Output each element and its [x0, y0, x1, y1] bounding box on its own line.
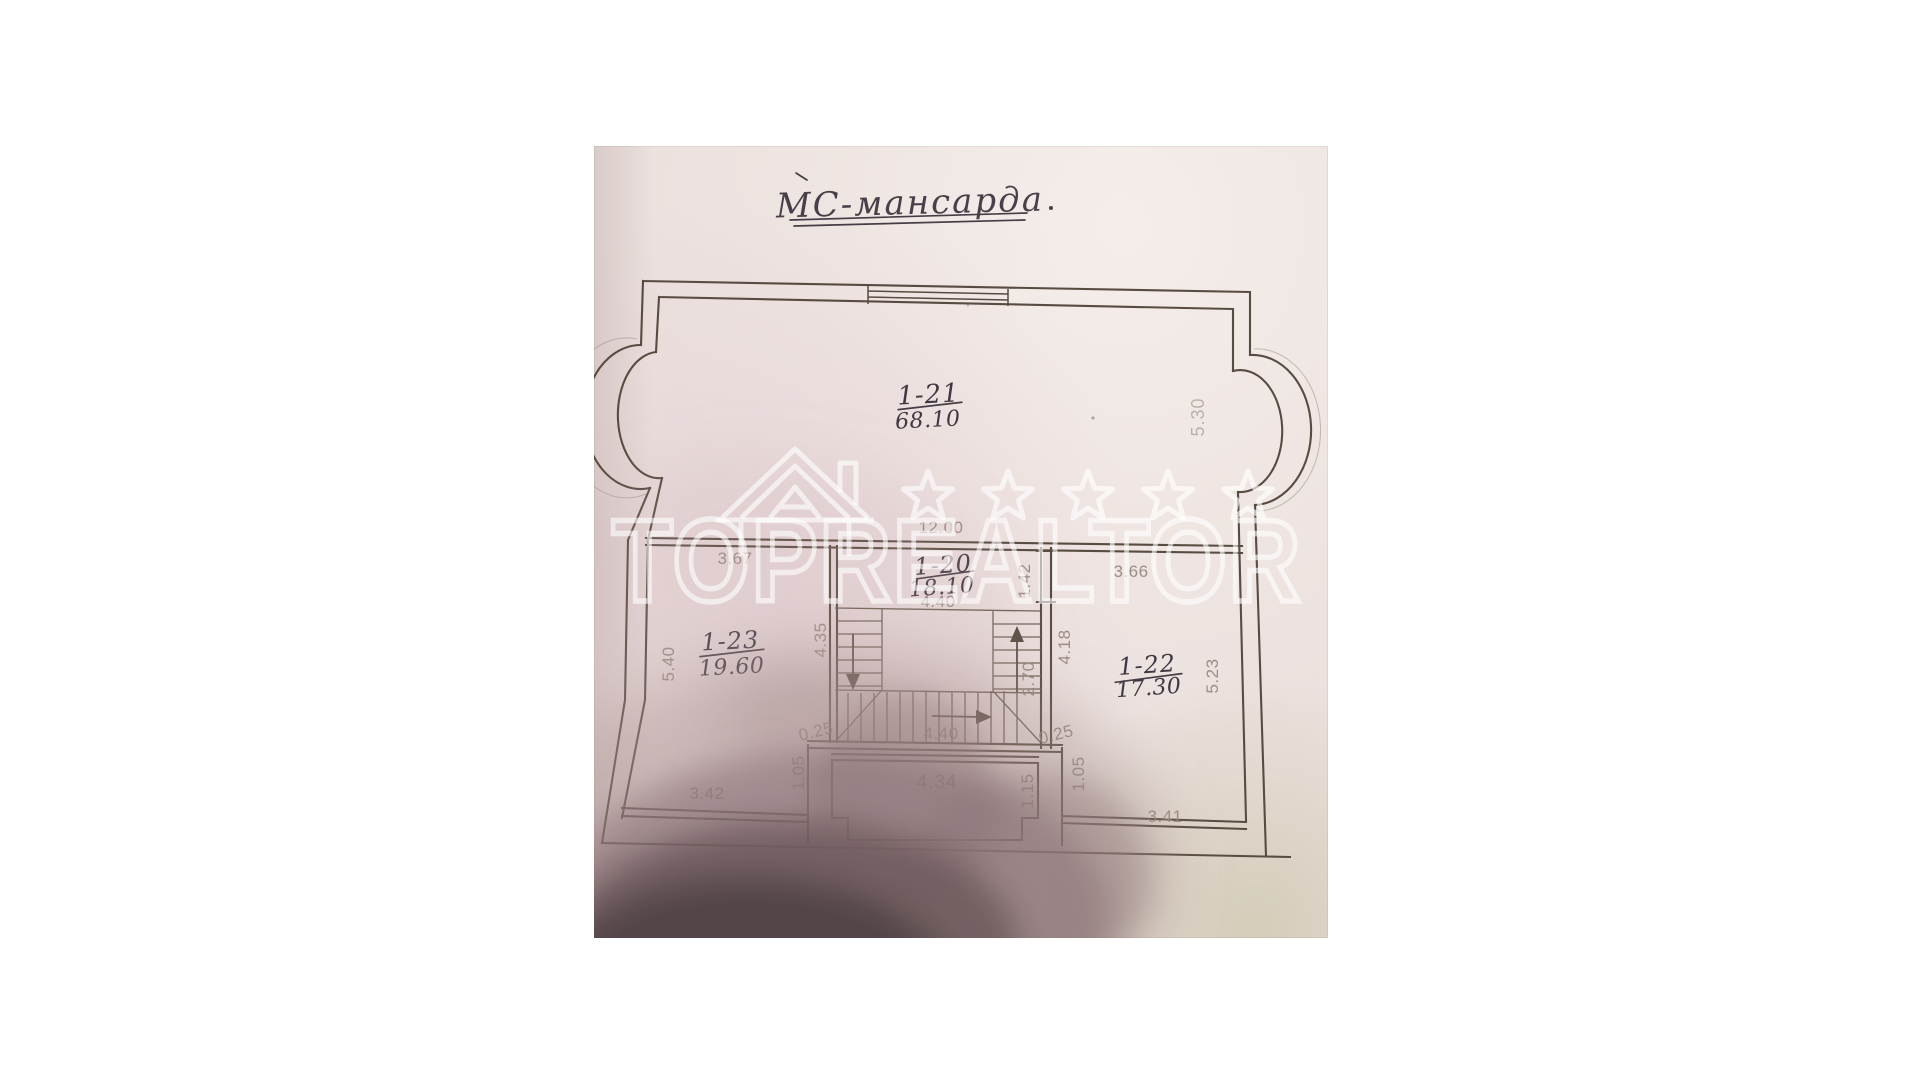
- floor-plan-photo: МС-мансарда 1: [0, 0, 1920, 1080]
- dim-r22-right: 5.23: [1203, 658, 1222, 693]
- watermark-brand-text: TOPREALTOR: [612, 495, 1302, 626]
- screenshot-root: МС-мансарда 1: [0, 0, 1920, 1080]
- stray-pen-dot: [1049, 206, 1053, 210]
- paper-speck: [967, 304, 970, 307]
- paper-speck: [1091, 416, 1094, 419]
- dim-r22-left: 4.18: [1055, 629, 1074, 664]
- room-1-21-area: 68.10: [894, 406, 961, 434]
- room-1-22-area: 17.30: [1115, 674, 1182, 704]
- dim-r21-right: 5.30: [1188, 397, 1208, 436]
